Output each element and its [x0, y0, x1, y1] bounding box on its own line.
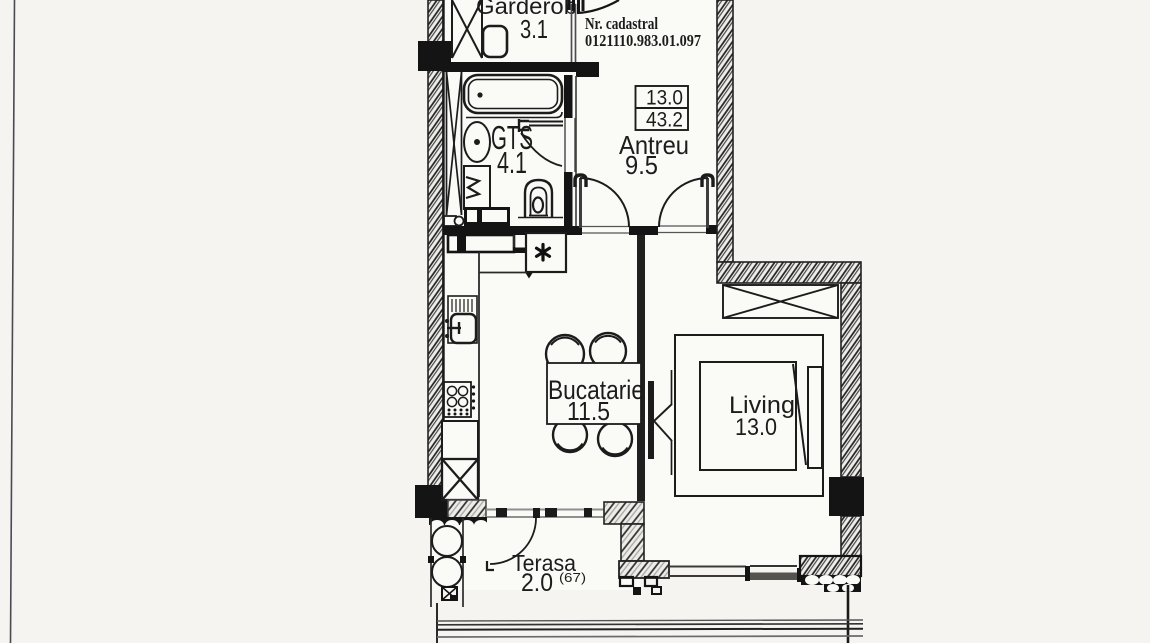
svg-text:11.5: 11.5	[567, 396, 610, 426]
svg-text:0121110.983.01.097: 0121110.983.01.097	[585, 31, 701, 50]
svg-text:(67): (67)	[559, 570, 586, 585]
svg-text:13.0: 13.0	[735, 414, 777, 441]
svg-text:43.2: 43.2	[646, 109, 683, 132]
svg-text:9.5: 9.5	[625, 150, 658, 180]
svg-text:2.0: 2.0	[521, 569, 553, 597]
svg-text:4.1: 4.1	[497, 145, 527, 180]
svg-text:13.0: 13.0	[646, 87, 683, 110]
svg-text:3.1: 3.1	[520, 14, 548, 44]
